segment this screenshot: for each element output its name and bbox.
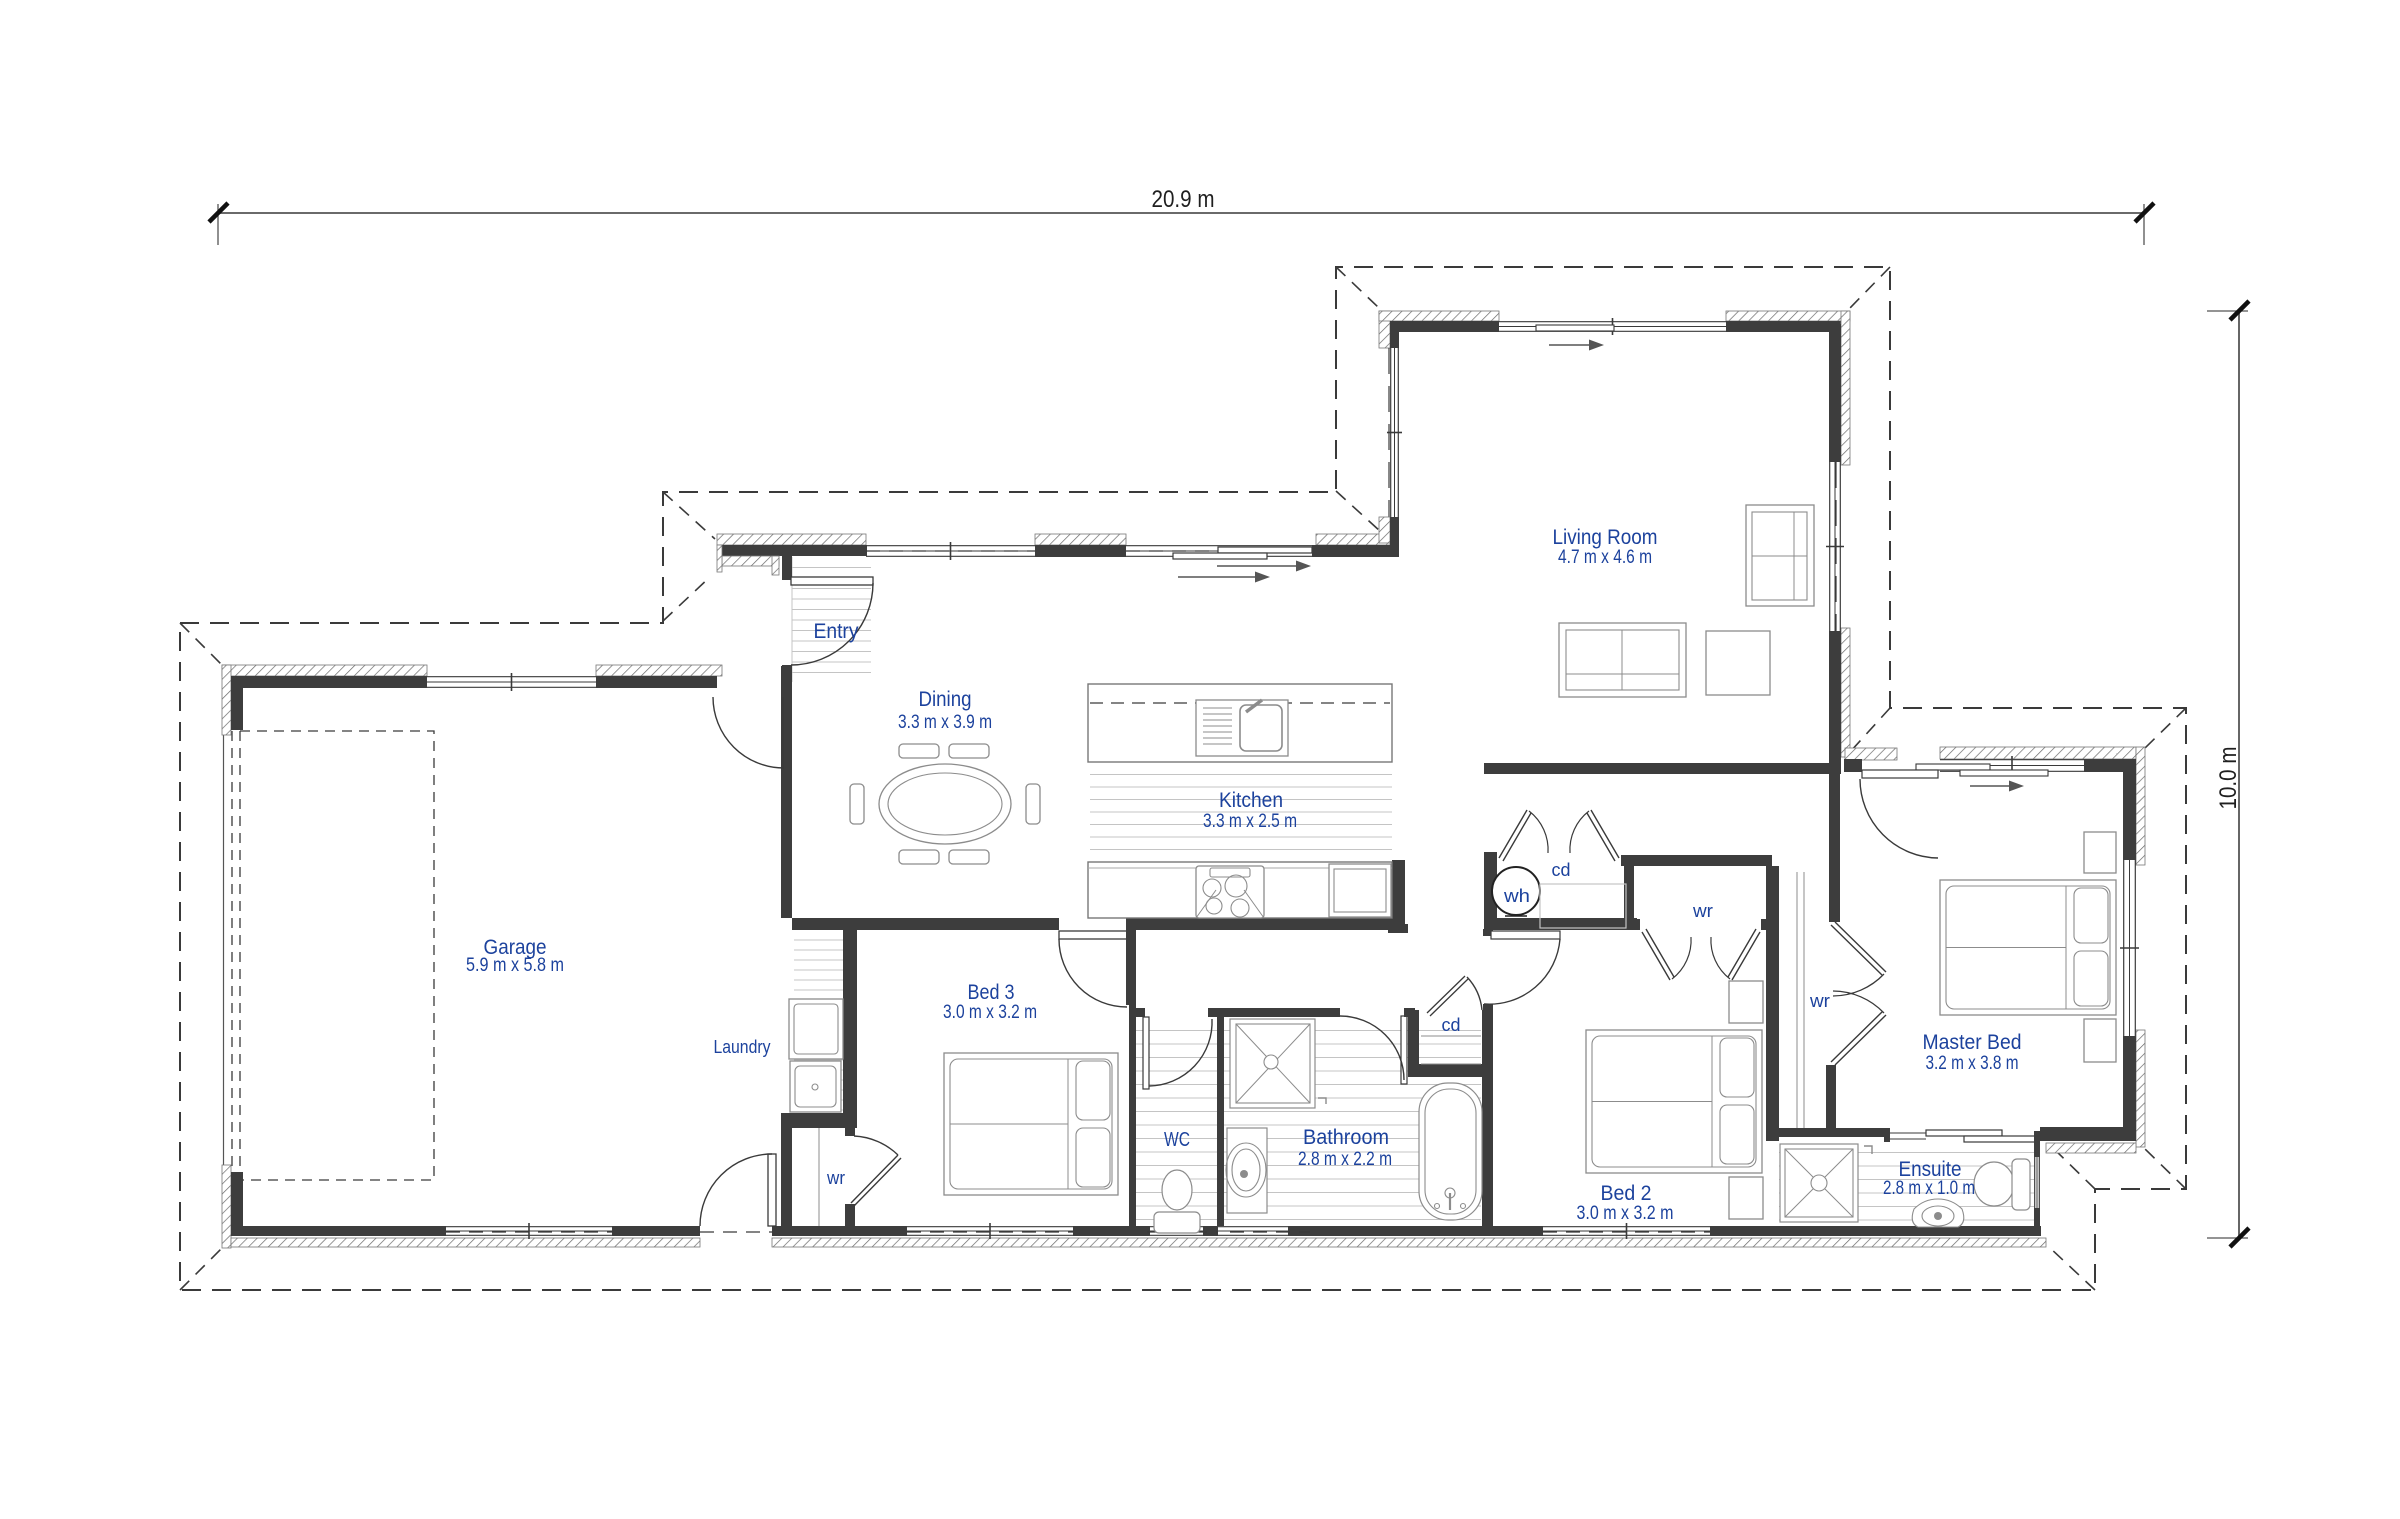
svg-text:3.0 m x 3.2 m: 3.0 m x 3.2 m bbox=[1577, 1202, 1674, 1224]
svg-text:3.0 m x 3.2 m: 3.0 m x 3.2 m bbox=[943, 1001, 1037, 1023]
svg-text:wh: wh bbox=[1503, 885, 1530, 906]
svg-text:2.8 m x 1.0 m: 2.8 m x 1.0 m bbox=[1883, 1177, 1975, 1199]
svg-text:cd: cd bbox=[1442, 1014, 1461, 1035]
svg-text:WC: WC bbox=[1164, 1129, 1190, 1151]
svg-text:Laundry: Laundry bbox=[714, 1037, 771, 1057]
svg-text:4.7 m x 4.6 m: 4.7 m x 4.6 m bbox=[1558, 546, 1652, 568]
svg-text:wr: wr bbox=[826, 1167, 845, 1188]
svg-text:10.0 m: 10.0 m bbox=[2215, 747, 2242, 810]
svg-text:3.2 m x 3.8 m: 3.2 m x 3.8 m bbox=[1926, 1052, 2019, 1074]
svg-text:wr: wr bbox=[1809, 990, 1830, 1011]
svg-text:Kitchen: Kitchen bbox=[1219, 788, 1283, 812]
svg-text:2.8 m x 2.2 m: 2.8 m x 2.2 m bbox=[1298, 1148, 1392, 1170]
svg-text:Dining: Dining bbox=[919, 687, 972, 711]
svg-text:cd: cd bbox=[1552, 859, 1571, 880]
svg-text:20.9 m: 20.9 m bbox=[1152, 186, 1215, 213]
svg-text:Master Bed: Master Bed bbox=[1923, 1030, 2022, 1054]
svg-text:5.9 m x 5.8 m: 5.9 m x 5.8 m bbox=[466, 954, 564, 976]
svg-text:Entry: Entry bbox=[814, 619, 859, 643]
svg-text:Bathroom: Bathroom bbox=[1303, 1125, 1389, 1149]
svg-text:3.3 m x 2.5 m: 3.3 m x 2.5 m bbox=[1203, 810, 1297, 832]
svg-text:3.3 m x 3.9 m: 3.3 m x 3.9 m bbox=[898, 711, 992, 733]
svg-text:wr: wr bbox=[1692, 900, 1713, 921]
